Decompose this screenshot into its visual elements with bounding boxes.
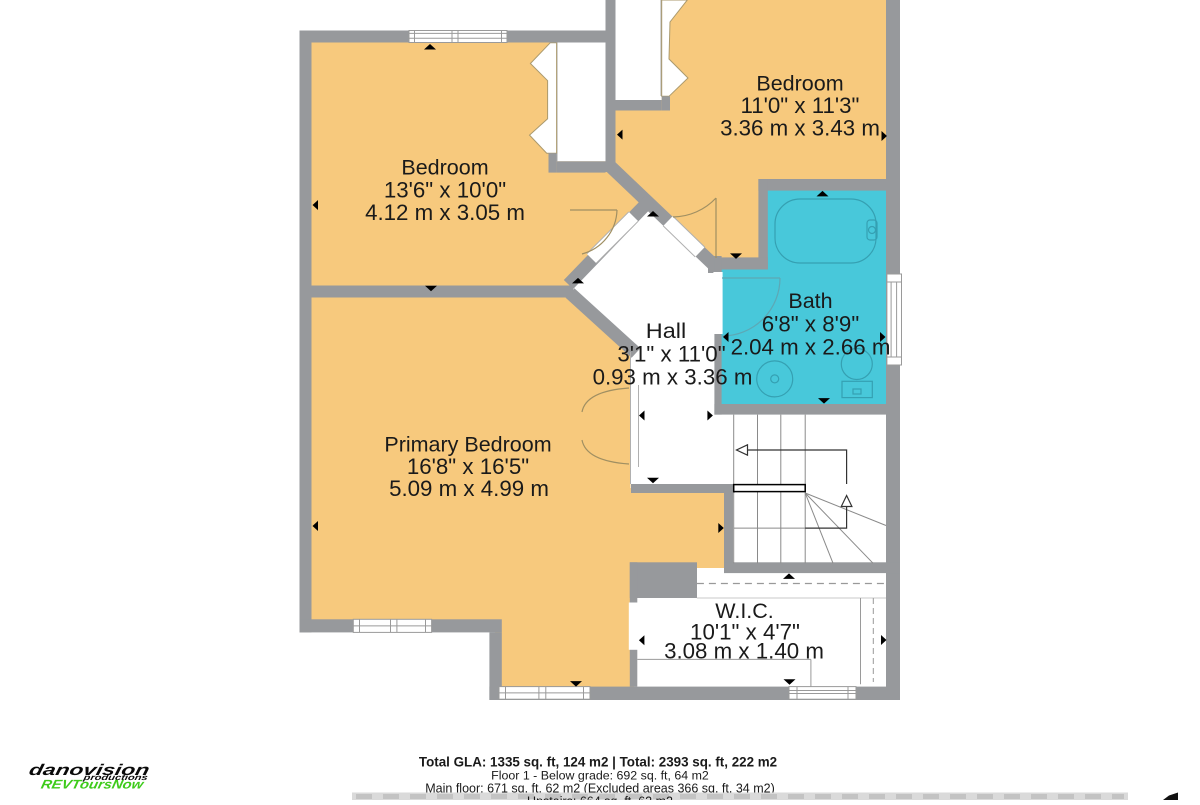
- svg-text:0.93 m x 3.36 m: 0.93 m x 3.36 m: [593, 365, 753, 390]
- svg-text:3.36 m x 3.43 m: 3.36 m x 3.43 m: [720, 116, 880, 141]
- svg-text:2.04 m x 2.66 m: 2.04 m x 2.66 m: [731, 335, 891, 360]
- svg-text:Upstairs: 664 sq. ft, 62 m2: Upstairs: 664 sq. ft, 62 m2: [527, 795, 673, 801]
- svg-text:Bath: Bath: [788, 289, 832, 313]
- svg-text:Bedroom: Bedroom: [401, 156, 488, 180]
- svg-text:Hall: Hall: [646, 319, 686, 343]
- svg-text:3'1" x 11'0": 3'1" x 11'0": [617, 342, 725, 367]
- svg-text:3.08 m x 1.40 m: 3.08 m x 1.40 m: [664, 639, 824, 664]
- svg-text:Total GLA: 1335 sq. ft, 124 m2: Total GLA: 1335 sq. ft, 124 m2 | Total: …: [419, 755, 777, 770]
- svg-text:Primary Bedroom: Primary Bedroom: [384, 433, 551, 457]
- svg-text:13'6" x 10'0": 13'6" x 10'0": [384, 178, 506, 203]
- svg-text:Bedroom: Bedroom: [756, 72, 843, 96]
- svg-text:11'0" x 11'3": 11'0" x 11'3": [741, 93, 860, 118]
- svg-text:REVToursNow: REVToursNow: [40, 778, 146, 792]
- svg-text:5.09 m x 4.99 m: 5.09 m x 4.99 m: [389, 476, 549, 501]
- svg-text:Floor 1 - Below grade: 692 sq.: Floor 1 - Below grade: 692 sq. ft, 64 m2: [491, 769, 709, 783]
- svg-text:4.12 m x 3.05 m: 4.12 m x 3.05 m: [365, 200, 525, 225]
- svg-text:6'8" x 8'9": 6'8" x 8'9": [762, 312, 859, 337]
